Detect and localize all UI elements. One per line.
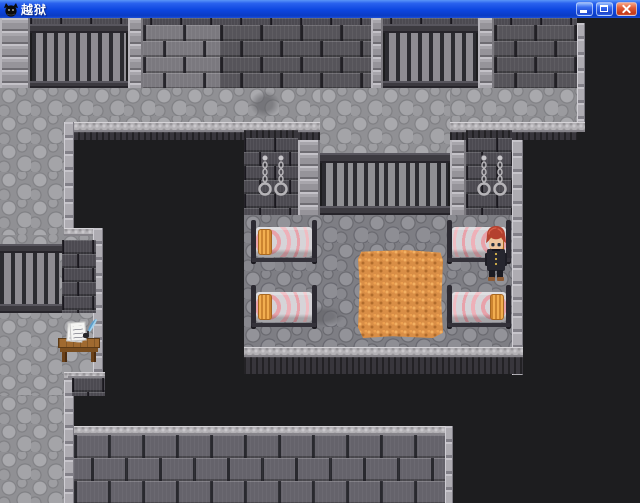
cell-roof-connector xyxy=(320,88,450,153)
corridor-ledge xyxy=(64,122,74,235)
window-frame-top xyxy=(30,24,128,33)
cell-pillar xyxy=(450,140,466,215)
shackle-chain xyxy=(274,154,288,198)
pillar xyxy=(478,18,494,88)
cell-right-cap xyxy=(512,140,523,375)
close-button[interactable] xyxy=(616,2,637,16)
straw-pile xyxy=(358,250,443,338)
cell-window-bars xyxy=(322,163,448,206)
corridor-ledge xyxy=(64,380,74,503)
cell-bottom-wall xyxy=(244,357,523,374)
desk-leg xyxy=(91,352,96,362)
shackle-chain xyxy=(258,154,272,198)
brick-road xyxy=(74,435,445,503)
prison-window-2 xyxy=(383,24,478,88)
pillar xyxy=(371,18,383,88)
window-bars xyxy=(32,33,126,81)
maximize-button[interactable] xyxy=(596,2,613,16)
window-frame-bottom xyxy=(30,81,128,88)
desk-leg xyxy=(62,352,67,362)
inkwell xyxy=(83,333,89,338)
cell-pillar xyxy=(298,140,320,215)
minimize-icon xyxy=(580,10,587,13)
top-wall-brick-light xyxy=(143,25,220,88)
game-viewport[interactable] xyxy=(0,18,640,503)
wall-right-cap xyxy=(577,23,585,132)
bed-pillow xyxy=(490,294,504,320)
character-prisoner[interactable] xyxy=(484,226,508,282)
bed-pillow xyxy=(258,229,272,255)
wall-brick-chunk xyxy=(72,378,105,396)
bed xyxy=(250,222,318,264)
bed xyxy=(250,287,318,329)
maximize-icon xyxy=(600,5,608,12)
bed-pillow xyxy=(258,294,272,320)
desk-with-papers[interactable] xyxy=(58,322,102,362)
cell-window-frame-bottom xyxy=(320,206,450,215)
window-title: 越狱 xyxy=(21,1,47,18)
window-titlebar[interactable]: 越狱 xyxy=(0,0,640,18)
cell-bottom-trim xyxy=(244,347,523,357)
top-corridor-floor xyxy=(0,88,577,122)
floor-stain xyxy=(250,91,280,117)
pillar xyxy=(0,18,30,88)
shackle-chain xyxy=(477,154,491,198)
road-edge-right xyxy=(445,426,453,503)
shackle-chain xyxy=(493,154,507,198)
road-edge-top xyxy=(74,426,445,435)
minimize-button[interactable] xyxy=(576,2,593,16)
top-wall-brick xyxy=(220,25,371,88)
app-creature-icon xyxy=(4,2,18,16)
prison-window-1 xyxy=(30,24,128,88)
prison-window-left xyxy=(0,244,62,313)
bed xyxy=(446,287,512,329)
top-wall-brick-right xyxy=(494,25,577,88)
pillar xyxy=(128,18,143,88)
cell-window-frame-top xyxy=(320,153,450,163)
left-wall-brick xyxy=(62,240,96,313)
